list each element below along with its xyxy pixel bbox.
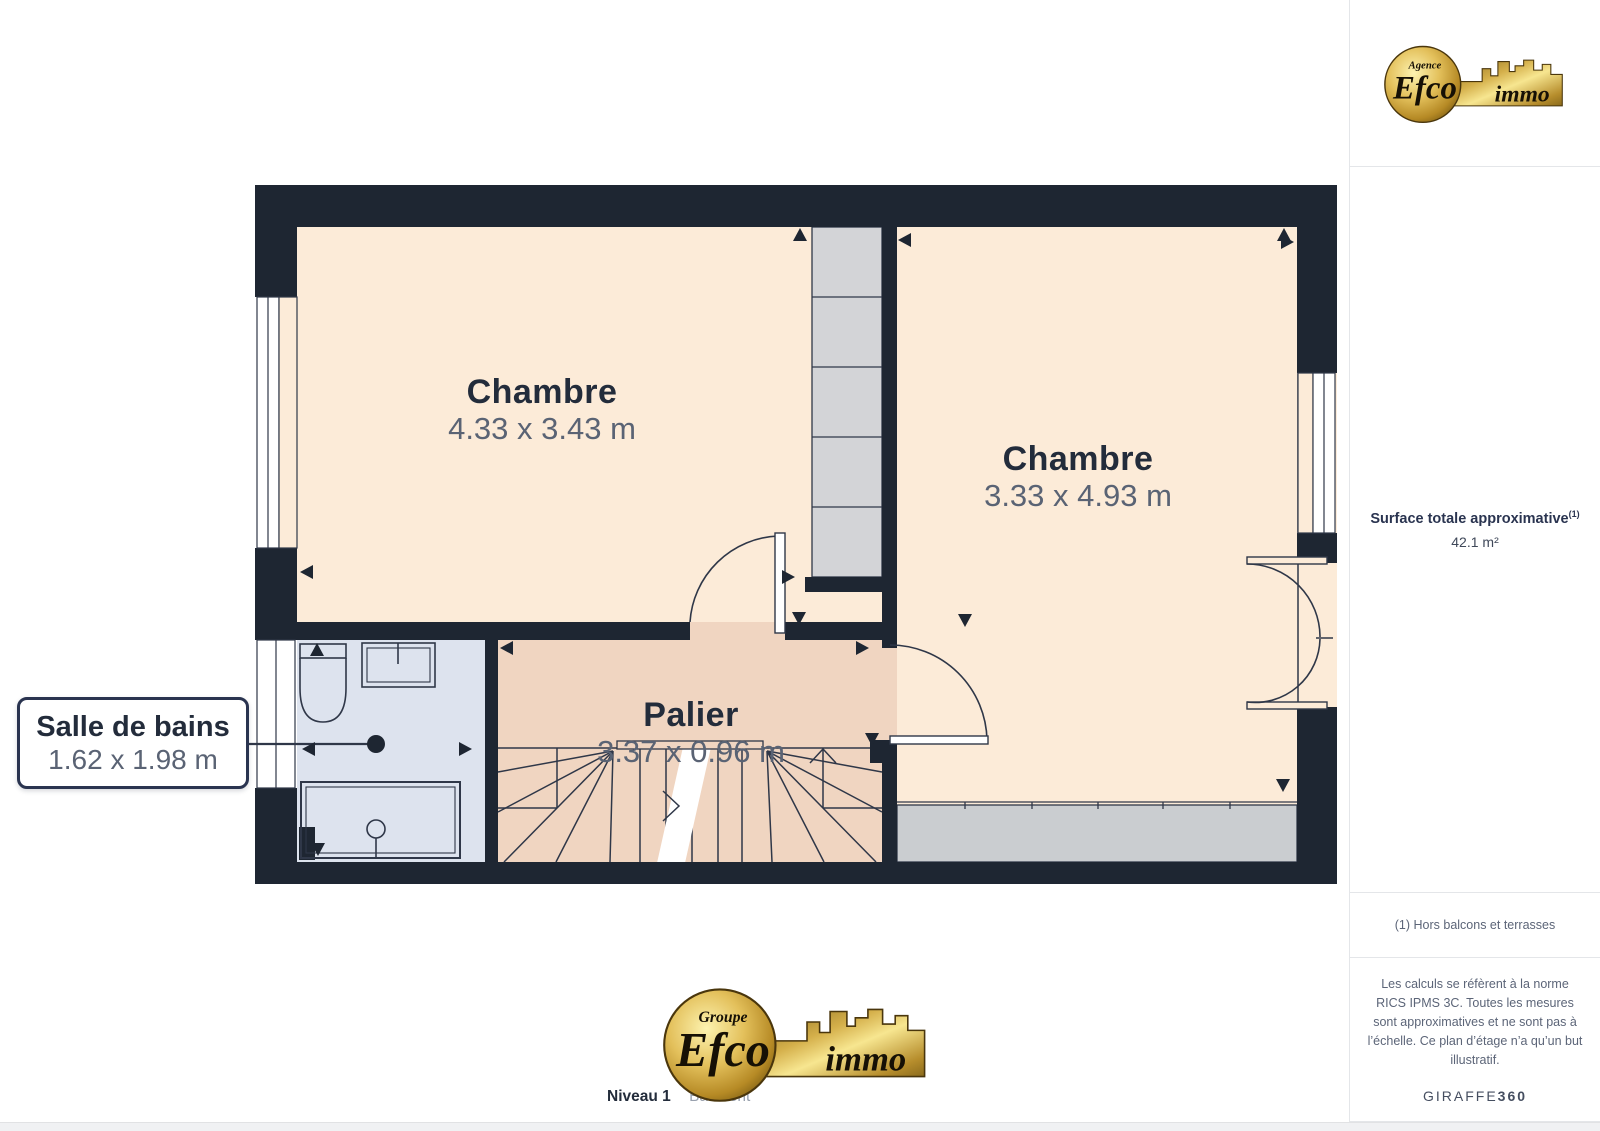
- bedroom-left-floor: [297, 227, 882, 624]
- room-dimensions: 1.62 x 1.98 m: [48, 744, 218, 776]
- closet: [812, 227, 882, 577]
- door-opening-floor-1: [690, 622, 785, 640]
- disclaimer-text: Les calculs se réfèrent à la norme RICS …: [1366, 975, 1584, 1070]
- door-opening-floor-2: [882, 648, 897, 740]
- sidebar-disclaimer-section: Les calculs se réfèrent à la norme RICS …: [1350, 958, 1600, 1122]
- leader-dot: [367, 735, 385, 753]
- logo-name: Efco: [675, 1024, 770, 1077]
- bathroom-floor: [297, 640, 485, 862]
- window-bedroom-right: [1298, 373, 1335, 533]
- window-bedroom-left: [257, 297, 297, 548]
- logo-suffix: immo: [1495, 82, 1550, 108]
- wardrobe: [897, 802, 1297, 862]
- room-name: Salle de bains: [36, 711, 229, 744]
- brand-name: GIRAFFE: [1423, 1088, 1498, 1104]
- room-label-bathroom-callout: Salle de bains 1.62 x 1.98 m: [17, 697, 249, 789]
- group-logo: Groupe Efco immo: [660, 980, 933, 1106]
- surface-note-ref: (1): [1569, 509, 1580, 519]
- sidebar-logo-section: Agence Efco immo: [1350, 0, 1600, 167]
- stairs-top-edge: [617, 741, 763, 749]
- brand-suffix: 360: [1498, 1088, 1527, 1104]
- giraffe360-brand: GIRAFFE360: [1423, 1088, 1527, 1104]
- bedroom-right-floor: [897, 227, 1337, 862]
- agency-logo: Agence Efco immo: [1382, 35, 1568, 131]
- surface-total-text: Surface totale approximative: [1370, 510, 1568, 526]
- sidebar-surface-section: Surface totale approximative(1) 42.1 m²: [1350, 167, 1600, 893]
- surface-total-label: Surface totale approximative(1): [1370, 509, 1579, 527]
- window-bathroom: [257, 640, 295, 788]
- surface-total-value: 42.1 m²: [1451, 534, 1498, 550]
- page-bottom-strip: [0, 1122, 1600, 1131]
- logo-suffix: immo: [825, 1040, 906, 1078]
- logo-tagline: Agence: [1408, 60, 1442, 72]
- sidebar-footnote-section: (1) Hors balcons et terrasses: [1350, 893, 1600, 958]
- sidebar: Agence Efco immo Surface totale approxim…: [1349, 0, 1600, 1131]
- footnote-text: (1) Hors balcons et terrasses: [1395, 918, 1555, 932]
- logo-name: Efco: [1392, 71, 1457, 107]
